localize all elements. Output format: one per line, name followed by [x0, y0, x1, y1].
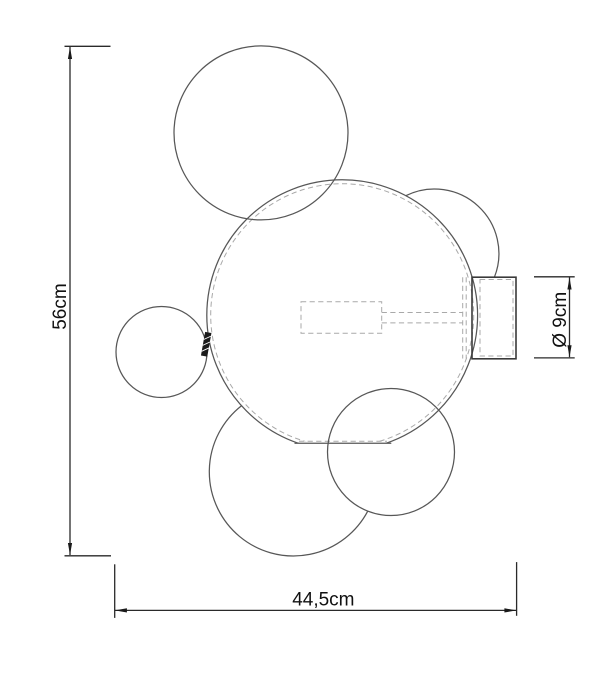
svg-text:Ø 9cm: Ø 9cm	[550, 292, 571, 348]
svg-text:44,5cm: 44,5cm	[292, 590, 354, 611]
svg-text:56cm: 56cm	[50, 283, 71, 329]
